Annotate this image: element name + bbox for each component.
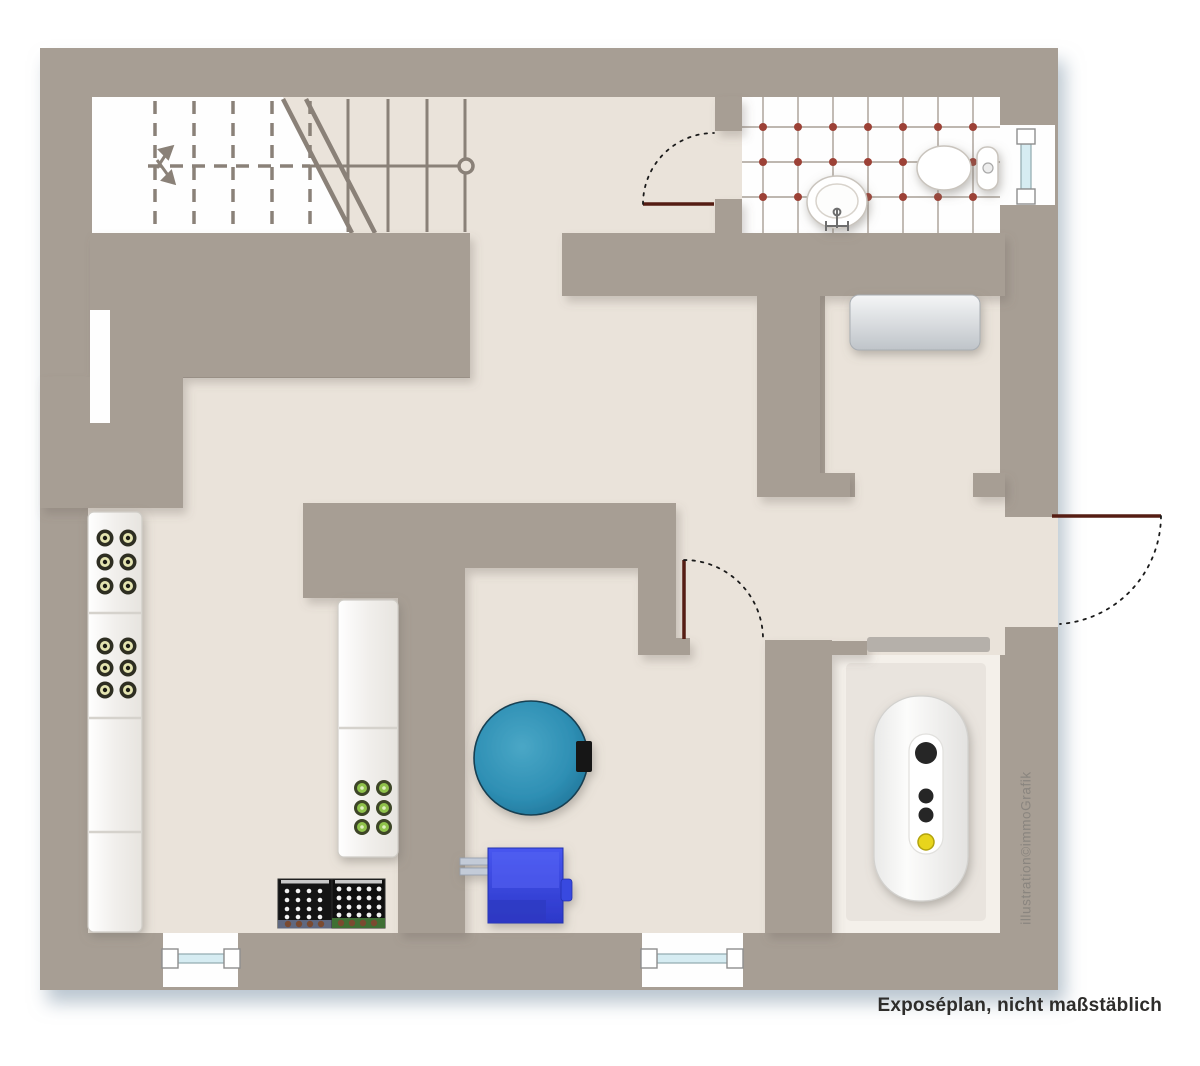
- control-knob: [915, 742, 937, 764]
- storage-chest: [850, 295, 980, 350]
- wine-rack: [88, 512, 142, 932]
- control-knob: [919, 789, 934, 804]
- bottle-rack: [338, 600, 398, 857]
- toilet-icon: [917, 146, 998, 190]
- floorplan-canvas: illustration©immoGrafik Exposéplan, nich…: [0, 0, 1200, 1066]
- stair-newel-post: [459, 159, 473, 173]
- pipe: [460, 858, 490, 865]
- entry-door-swing: [1052, 516, 1161, 624]
- control-knob: [919, 808, 934, 823]
- caption-text: Exposéplan, nicht maßstäblich: [877, 995, 1162, 1017]
- right-window: [1000, 125, 1055, 205]
- tank-handle: [576, 741, 592, 772]
- bottom-middle-window: [641, 933, 743, 987]
- bottom-left-window: [162, 933, 240, 987]
- pipe: [460, 868, 490, 875]
- left-wall-niche: [90, 310, 110, 423]
- heating-unit: [874, 696, 968, 901]
- tank-room-lintel: [867, 637, 990, 652]
- watermark-text: illustration©immoGrafik: [1019, 771, 1034, 925]
- indicator-light: [918, 834, 934, 850]
- bottle-crates: [278, 879, 385, 929]
